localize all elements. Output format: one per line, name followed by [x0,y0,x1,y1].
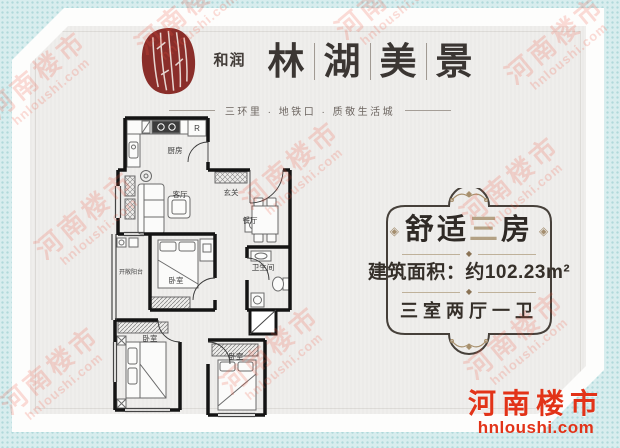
dining-chair [267,198,276,206]
unit-title-prefix: 舒适 [405,214,469,246]
room-label-fridge: R [194,124,200,133]
desk [200,239,214,261]
brand-char: 美 [370,43,426,80]
brand-name-side: 和润 [213,52,245,69]
wardrobe [118,322,168,333]
divider-diamond-icon: ◆ [466,288,472,296]
diamond-ornament-icon: ◈ [384,224,405,238]
room-label-kitchen: 厨房 [168,145,183,155]
pillow [220,362,235,371]
brand-name-main: 林 湖 美 景 [259,43,482,80]
built-area-text: 建筑面积：约102.23m² [366,261,572,285]
brand-char: 景 [426,43,482,80]
plant [141,171,152,182]
panel-divider: ◆ [366,249,572,259]
room-label-living: 客厅 [173,189,188,199]
kitchen-faucet [132,145,136,149]
balcony-unit [117,238,126,247]
info-panel-body: ◈舒适三房◈ ◆ 建筑面积：约102.23m² ◆ 三室两厅一卫 [366,214,572,323]
room-label-bedroom: 卧室 [169,275,184,285]
brand-side-char: 和润 [213,52,245,69]
stove [152,121,180,133]
divider-line [402,292,460,293]
unit-title: ◈舒适三房◈ [366,214,572,247]
unit-title-highlight: 三 [469,214,501,246]
site-logo-name: 河南楼市 [468,390,604,418]
divider-line [478,254,536,255]
pillow [128,368,137,384]
room-label-dining: 餐厅 [243,216,258,225]
shoe-cabinet [215,172,247,183]
sofa [138,184,164,234]
flyer-stage: 和润 林 湖 美 景 三环里 · 地铁口 · 质敬生活城 [0,0,620,448]
panel-divider: ◆ [366,287,572,297]
room-label-bedroom: 卧室 [229,351,244,361]
room-label-entry: 玄关 [224,187,239,197]
pillow [238,362,253,371]
divider-diamond-icon: ◆ [466,250,472,258]
cabinet [125,176,135,196]
brand-logo-row: 和润 林 湖 美 景 [138,26,481,96]
pillow [128,348,137,364]
unit-title-suffix: 房 [501,214,533,246]
site-logo-url: hnloushi.com [468,419,604,436]
flourish-top-icon [451,191,488,201]
tagline-rule-right [405,110,451,111]
room-label-bathroom: 卫生间 [252,262,275,272]
kitchen-door [188,142,208,162]
brand-logo: 和润 林 湖 美 景 三环里 · 地铁口 · 质敬生活城 [0,26,620,118]
site-logo: 河南楼市 hnloushi.com [468,390,604,436]
info-panel: ◈舒适三房◈ ◆ 建筑面积：约102.23m² ◆ 三室两厅一卫 [366,188,572,360]
room-layout-text: 三室两厅一卫 [366,299,572,323]
dining-chair [267,234,276,242]
cabinet [125,199,135,219]
pillow [160,242,176,251]
divider-line [478,292,536,293]
balcony-railing [112,234,116,320]
brand-char: 湖 [314,43,370,80]
washer [251,293,264,307]
brand-char: 林 [259,43,314,80]
wardrobe [150,297,190,309]
dining-chair [254,234,263,242]
kitchen-sink [129,142,138,158]
diamond-ornament-icon: ◈ [533,224,554,238]
balcony-unit [129,238,138,247]
divider-line [402,254,460,255]
bamboo-seal-icon [136,23,204,98]
tagline-rule-left [169,110,215,111]
room-label-bedroom: 卧室 [143,333,158,343]
toilet [273,277,284,291]
coffee-table [168,196,190,218]
floor-plan-diagram: R 厨房 玄关 客厅 餐厅 卫生间 开敞阳台 卧室 卧室 卧室 [100,112,315,422]
pillow [179,242,195,251]
room-label-balcony: 开敞阳台 [119,268,143,276]
